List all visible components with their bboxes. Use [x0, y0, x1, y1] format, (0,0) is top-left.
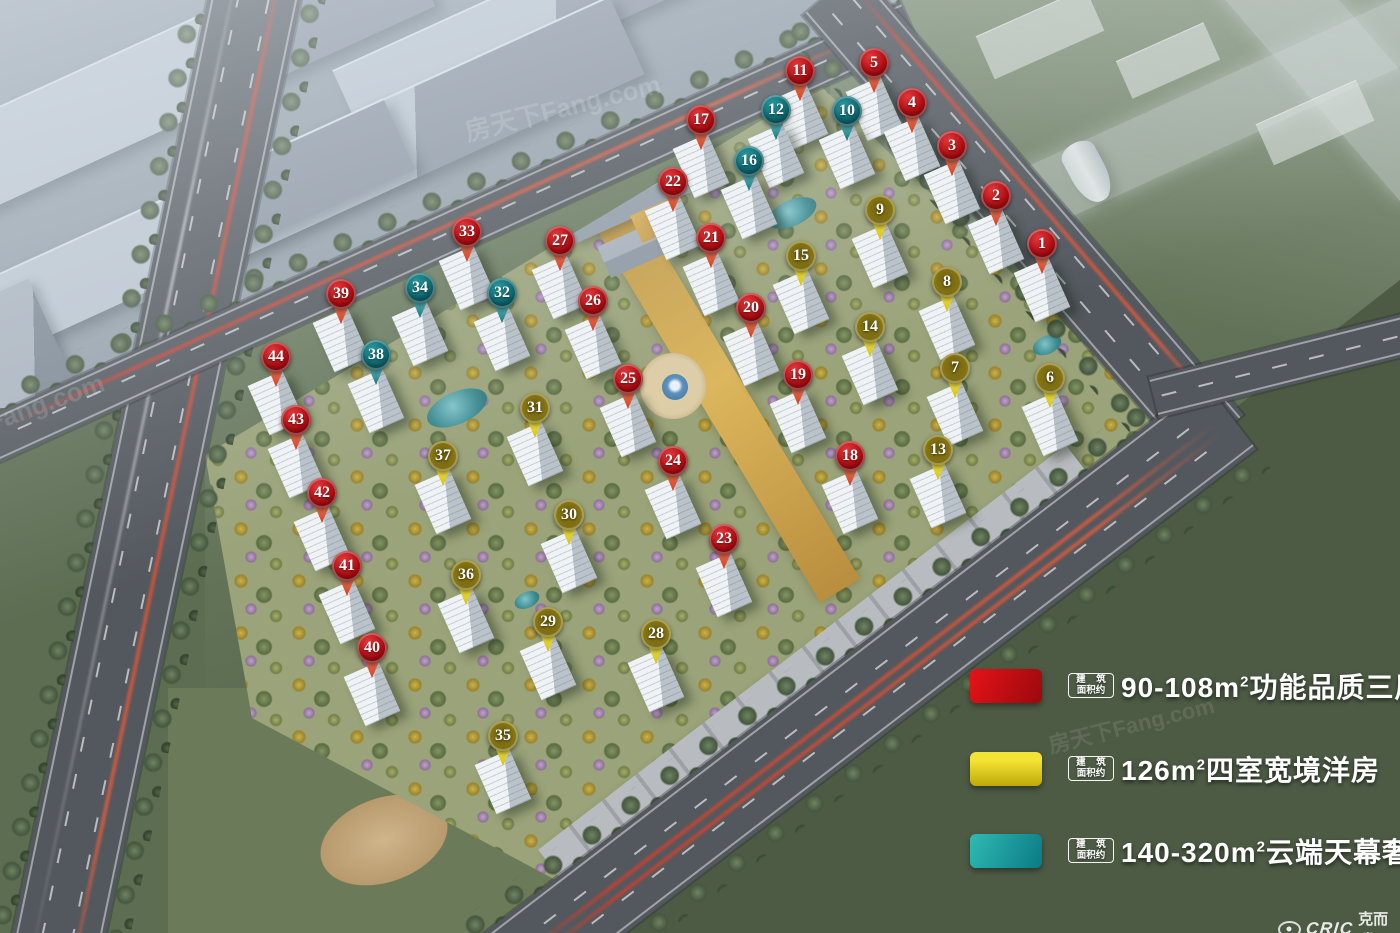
- legend-area-badge: 建 筑面积约: [1068, 673, 1114, 698]
- pin-number: 27: [552, 233, 568, 249]
- pin-number: 42: [314, 485, 330, 501]
- cric-chinese-name: 克而瑞: [1358, 908, 1400, 933]
- cric-eye-icon: [1278, 921, 1301, 933]
- pin-number: 1: [1038, 236, 1046, 252]
- pin-number: 28: [648, 626, 664, 642]
- pin-number: 7: [951, 360, 959, 376]
- pin-number: 41: [339, 558, 355, 574]
- pin-number: 30: [561, 507, 577, 523]
- legend-area-badge: 建 筑面积约: [1068, 838, 1114, 863]
- pin-number: 22: [665, 174, 681, 190]
- pin-number: 14: [862, 319, 878, 335]
- pin-number: 38: [368, 347, 384, 363]
- site-plan-image: 房天下Fang.com 房天下Fang.com 房天下Fang.com 1234…: [0, 0, 1400, 933]
- pin-number: 3: [948, 138, 956, 154]
- pin-number: 17: [693, 112, 709, 128]
- pin-number: 15: [793, 248, 809, 264]
- pin-number: 13: [930, 442, 946, 458]
- pin-number: 6: [1046, 370, 1054, 386]
- pin-number: 8: [943, 274, 951, 290]
- pin-number: 21: [703, 230, 719, 246]
- pin-number: 9: [876, 202, 884, 218]
- cric-wordmark: CRIC: [1305, 919, 1355, 933]
- legend-item-red: 建 筑面积约 90-108m2功能品质三居: [970, 668, 1400, 703]
- pin-number: 36: [458, 567, 474, 583]
- pin-number: 32: [494, 285, 510, 301]
- pin-number: 31: [527, 400, 543, 416]
- pin-number: 26: [585, 293, 601, 309]
- pin-number: 34: [412, 280, 428, 296]
- legend-item-teal: 建 筑面积约 140-320m2云端天幕奢宅: [970, 833, 1400, 868]
- pin-number: 16: [741, 153, 757, 169]
- pin-number: 43: [288, 412, 304, 428]
- pin-number: 33: [459, 224, 475, 240]
- pin-number: 20: [743, 300, 759, 316]
- pin-number: 35: [495, 728, 511, 744]
- legend-item-yellow: 建 筑面积约 126m2四室宽境洋房: [970, 751, 1380, 786]
- pin-number: 24: [665, 453, 681, 469]
- pin-number: 44: [268, 349, 284, 365]
- pin-number: 37: [435, 448, 451, 464]
- pin-number: 10: [839, 103, 855, 119]
- pin-layer: 1234567891011121314151617181920212223242…: [0, 0, 1400, 933]
- pin-number: 2: [992, 188, 1000, 204]
- legend-label: 126m2四室宽境洋房: [1121, 749, 1380, 789]
- pin-number: 18: [842, 448, 858, 464]
- pin-number: 23: [716, 531, 732, 547]
- pin-number: 12: [768, 102, 784, 118]
- pin-number: 4: [908, 95, 916, 111]
- pin-number: 19: [790, 367, 806, 383]
- legend-swatch-red: [970, 669, 1042, 703]
- legend-swatch-teal: [970, 834, 1042, 868]
- legend-label: 90-108m2功能品质三居: [1121, 666, 1400, 706]
- pin-number: 40: [364, 640, 380, 656]
- pin-number: 29: [540, 614, 556, 630]
- legend-area-badge: 建 筑面积约: [1068, 756, 1114, 781]
- pin-number: 25: [620, 371, 636, 387]
- cric-logo: CRIC 克而瑞: [1278, 908, 1400, 933]
- legend-label: 140-320m2云端天幕奢宅: [1121, 831, 1400, 871]
- legend-swatch-yellow: [970, 752, 1042, 786]
- pin-number: 11: [792, 63, 807, 79]
- pin-number: 5: [870, 55, 878, 71]
- pin-number: 39: [333, 286, 349, 302]
